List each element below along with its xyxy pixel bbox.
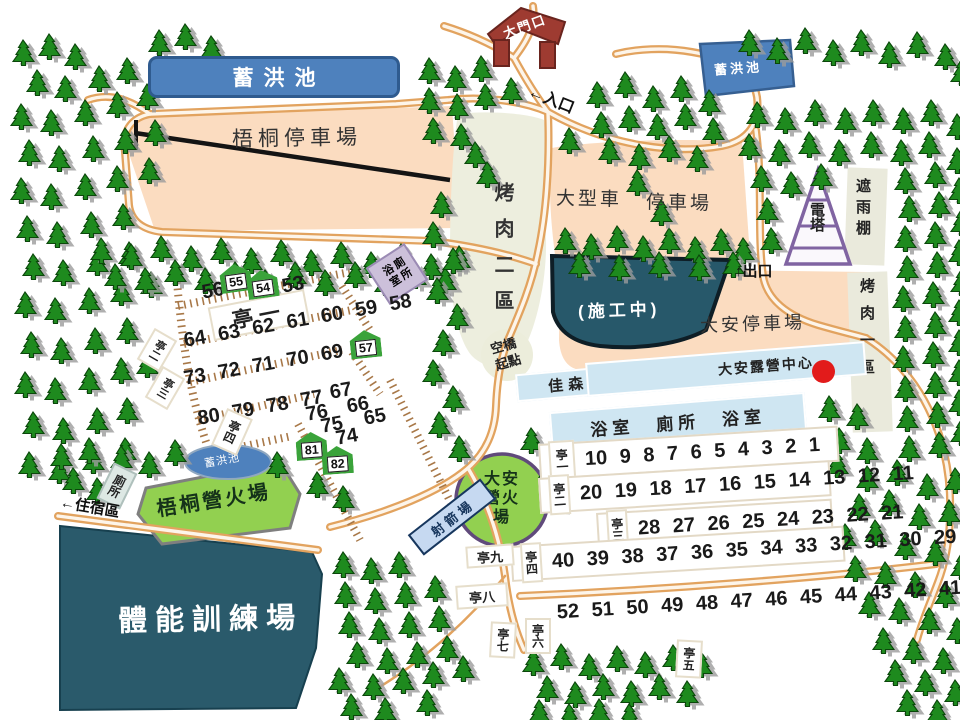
tree-icon: [781, 172, 809, 201]
tree-icon: [19, 140, 47, 169]
left-pavilion-3-label: 亭三: [153, 374, 178, 401]
row2-pavilion-label: 亭二: [550, 482, 568, 507]
tree-icon: [643, 86, 671, 115]
tree-icon: [675, 104, 703, 133]
tree-icon: [23, 412, 51, 441]
tree-icon: [15, 292, 43, 321]
rain-shelter-label: 遮雨棚: [852, 178, 873, 268]
tree-icon: [851, 30, 879, 59]
house-55-number: 55: [225, 273, 248, 292]
tree-icon: [897, 690, 925, 719]
tree-icon: [895, 226, 923, 255]
tree-icon: [11, 178, 39, 207]
pavilion-5-box: 亭五: [675, 639, 703, 678]
daan-parking-label: 大安停車場: [700, 308, 806, 338]
tree-icon: [895, 168, 923, 197]
tree-icon: [949, 300, 960, 329]
tree-icon: [429, 606, 457, 635]
tree-icon: [423, 360, 451, 389]
tree-icon: [51, 338, 79, 367]
tree-icon: [929, 432, 957, 461]
tree-icon: [949, 360, 960, 389]
tree-icon: [53, 260, 81, 289]
tree-icon: [615, 72, 643, 101]
tree-icon: [925, 162, 953, 191]
tree-icon: [425, 576, 453, 605]
tree-icon: [41, 110, 69, 139]
tree-icon: [939, 500, 960, 529]
tree-icon: [799, 132, 827, 161]
tree-icon: [621, 681, 649, 710]
pavilion-9-box: 亭九: [465, 543, 514, 568]
tree-icon: [417, 690, 445, 719]
tree-icon: [879, 42, 907, 71]
tree-icon: [443, 386, 471, 415]
tree-icon: [873, 628, 901, 657]
tree-icon: [551, 644, 579, 673]
tree-icon: [117, 398, 145, 427]
tree-icon: [117, 318, 145, 347]
tree-icon: [45, 378, 73, 407]
tree-icon: [927, 252, 955, 281]
tree-icon: [11, 104, 39, 133]
tree-icon: [537, 676, 565, 705]
tree-icon: [23, 254, 51, 283]
tree-icon: [347, 642, 375, 671]
tree-icon: [449, 436, 477, 465]
tree-icon: [15, 372, 43, 401]
tree-icon: [893, 346, 921, 375]
tree-icon: [523, 650, 551, 679]
tree-icon: [39, 34, 67, 63]
house-81-number: 81: [301, 441, 323, 458]
pavilion-5-label: 亭五: [680, 647, 698, 672]
pond-label: 蓄洪池: [223, 62, 326, 92]
pavilion-6-box: 亭六: [525, 618, 551, 654]
tree-icon: [399, 612, 427, 641]
tree-icon: [947, 618, 960, 647]
tree-icon: [885, 660, 913, 689]
training-field-label: 體能訓練場: [118, 594, 304, 639]
campground-map: 蓄洪池 蓄洪池 蓄洪池 梧桐停車場 大門口 ←入口 ↑出口 大型車 停車場 烤肉…: [0, 0, 960, 720]
tree-icon: [365, 588, 393, 617]
pavilion-6-label: 亭六: [530, 624, 547, 648]
toilet-box-label: 廁所: [104, 471, 130, 500]
tree-icon: [13, 40, 41, 69]
house-82-number: 82: [327, 455, 349, 472]
tree-icon: [927, 700, 955, 720]
tree-icon: [947, 114, 960, 143]
tree-icon: [429, 412, 457, 441]
tree-icon: [27, 70, 55, 99]
tree-icon: [79, 288, 107, 317]
tree-icon: [445, 66, 473, 95]
tree-icon: [835, 108, 863, 137]
tree-icon: [589, 699, 617, 720]
tree-icon: [923, 282, 951, 311]
large-vehicle-parking-label-2: 停車場: [646, 187, 712, 215]
red-marker-dot: [812, 360, 835, 383]
tree-icon: [897, 256, 925, 285]
tree-icon: [897, 406, 925, 435]
tree-icon: [41, 184, 69, 213]
tree-icon: [79, 368, 107, 397]
tree-icon: [81, 212, 109, 241]
tree-icon: [805, 100, 833, 129]
tree-icon: [893, 108, 921, 137]
tree-icon: [333, 486, 361, 515]
tree-icon: [899, 436, 927, 465]
exit-note: ↑出口: [735, 260, 773, 281]
tree-icon: [175, 24, 203, 53]
tree-icon: [775, 108, 803, 137]
tree-icon: [945, 680, 960, 709]
tree-icon: [925, 312, 953, 341]
camp-center-label: 大安露營中心: [717, 352, 814, 379]
tree-icon: [419, 58, 447, 87]
construction-label: (施工中): [578, 295, 661, 323]
tree-icon: [933, 648, 960, 677]
tree-icon: [903, 638, 931, 667]
tree-icon: [75, 100, 103, 129]
tree-icon: [433, 330, 461, 359]
site-53: 53: [280, 272, 306, 299]
tree-icon: [339, 612, 367, 641]
tree-icon: [907, 32, 935, 61]
tree-icon: [925, 372, 953, 401]
tree-icon: [761, 228, 789, 257]
tree-icon: [915, 670, 943, 699]
tree-icon: [895, 316, 923, 345]
tree-icon: [819, 396, 847, 425]
tree-icon: [75, 174, 103, 203]
pavilion-7-box: 亭七: [489, 621, 517, 658]
tree-icon: [21, 332, 49, 361]
tree-icon: [921, 100, 949, 129]
tree-icon: [329, 668, 357, 697]
tree-icon: [607, 646, 635, 675]
left-pavilion-4-label: 亭四: [219, 418, 244, 447]
tree-icon: [55, 76, 83, 105]
tree-icon: [619, 106, 647, 135]
tree-icon: [19, 452, 47, 481]
tree-icon: [307, 472, 335, 501]
tree-icon: [923, 342, 951, 371]
tree-icon: [79, 438, 107, 467]
tree-icon: [87, 408, 115, 437]
house-57-number: 57: [355, 339, 378, 357]
tree-icon: [395, 582, 423, 611]
tree-icon: [335, 582, 363, 611]
pond-top-right-label: 蓄洪池: [713, 56, 762, 78]
tree-icon: [149, 30, 177, 59]
tree-icon: [85, 328, 113, 357]
tree-icon: [83, 136, 111, 165]
tree-icon: [935, 44, 960, 73]
wutong-parking-label: 梧桐停車場: [232, 121, 363, 153]
tree-icon: [65, 44, 93, 73]
bath-toilet-box-label: 浴室廁所: [378, 255, 415, 293]
left-pavilion-2-label: 亭二: [145, 336, 170, 363]
tree-icon: [671, 76, 699, 105]
tree-icon: [139, 452, 167, 481]
pavilion-8-label: 亭八: [468, 586, 495, 607]
tree-icon: [89, 66, 117, 95]
tree-icon: [861, 132, 889, 161]
tree-icon: [361, 558, 389, 587]
tree-icon: [829, 140, 857, 169]
pavilion-8-box: 亭八: [455, 582, 509, 610]
tree-icon: [863, 100, 891, 129]
tree-icon: [369, 618, 397, 647]
tree-icon: [333, 552, 361, 581]
tree-icon: [677, 681, 705, 710]
power-tower-label: 電塔: [806, 202, 827, 262]
row4-pavilion-label: 亭四: [522, 550, 540, 575]
house-54-number: 54: [252, 279, 275, 298]
tree-icon: [925, 222, 953, 251]
tree-icon: [919, 132, 947, 161]
tree-icon: [341, 694, 369, 720]
tree-icon: [587, 82, 615, 111]
tree-icon: [899, 196, 927, 225]
tree-icon: [47, 222, 75, 251]
tree-icon: [947, 148, 960, 177]
house-57-icon: 57: [349, 328, 383, 359]
tree-icon: [111, 358, 139, 387]
pavilion-7-label: 亭七: [494, 628, 512, 653]
tree-icon: [17, 216, 45, 245]
pavilion-9-label: 亭九: [476, 546, 503, 567]
tree-icon: [823, 40, 851, 69]
large-vehicle-parking-label-1: 大型車: [556, 183, 622, 211]
tree-icon: [795, 28, 823, 57]
row1-pavilion-label: 亭一: [553, 448, 571, 473]
tree-icon: [769, 140, 797, 169]
tree-icon: [893, 286, 921, 315]
tree-icon: [857, 438, 885, 467]
site-65: 65: [362, 404, 388, 431]
house-54-icon: 54: [245, 268, 280, 300]
tree-icon: [53, 418, 81, 447]
tree-icon: [45, 298, 73, 327]
tree-icon: [389, 552, 417, 581]
tree-icon: [117, 58, 145, 87]
tree-icon: [891, 140, 919, 169]
tree-icon: [363, 674, 391, 703]
house-82-icon: 82: [321, 445, 354, 475]
pond-top-left: 蓄洪池: [148, 56, 400, 98]
tree-icon: [49, 146, 77, 175]
tree-icon: [917, 474, 945, 503]
